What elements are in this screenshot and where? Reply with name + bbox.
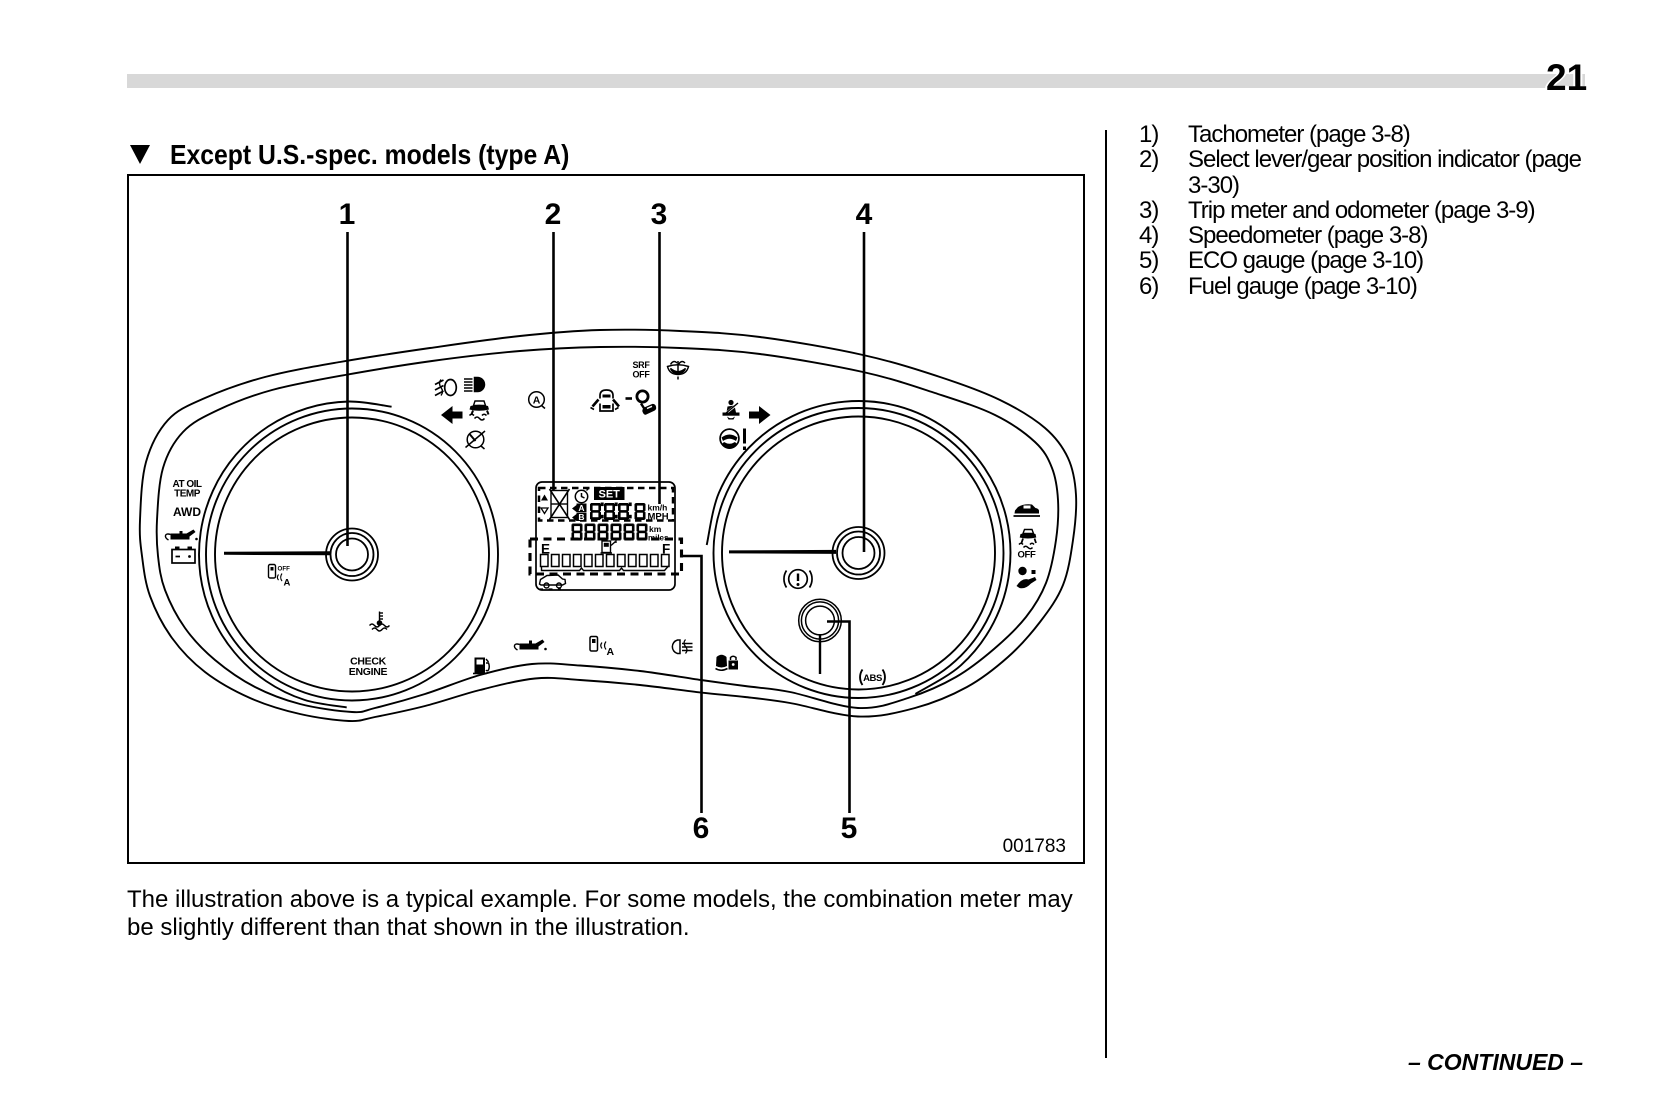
svg-text:1: 1 (339, 198, 356, 231)
svg-text:AWD: AWD (173, 505, 201, 519)
svg-text:A: A (533, 395, 541, 407)
svg-text:3: 3 (651, 198, 668, 231)
svg-text:2: 2 (545, 198, 562, 231)
svg-text:SET: SET (598, 489, 620, 501)
svg-text:MPH: MPH (648, 512, 669, 523)
svg-text:OFF: OFF (1017, 550, 1036, 561)
svg-text:ENGINE: ENGINE (349, 666, 388, 678)
svg-text:SRF: SRF (632, 360, 650, 370)
svg-text:ABS: ABS (863, 673, 882, 684)
svg-text:5: 5 (841, 812, 858, 845)
svg-text:4: 4 (856, 198, 873, 231)
svg-text:km: km (649, 524, 662, 534)
svg-text:OFF: OFF (632, 370, 650, 380)
svg-text:001783: 001783 (1003, 836, 1066, 857)
svg-text:B: B (578, 512, 584, 522)
svg-text:OFF: OFF (278, 566, 291, 573)
svg-text:A: A (607, 646, 615, 658)
svg-text:6: 6 (693, 812, 710, 845)
svg-text:A: A (284, 578, 291, 589)
svg-text:TEMP: TEMP (174, 489, 201, 500)
